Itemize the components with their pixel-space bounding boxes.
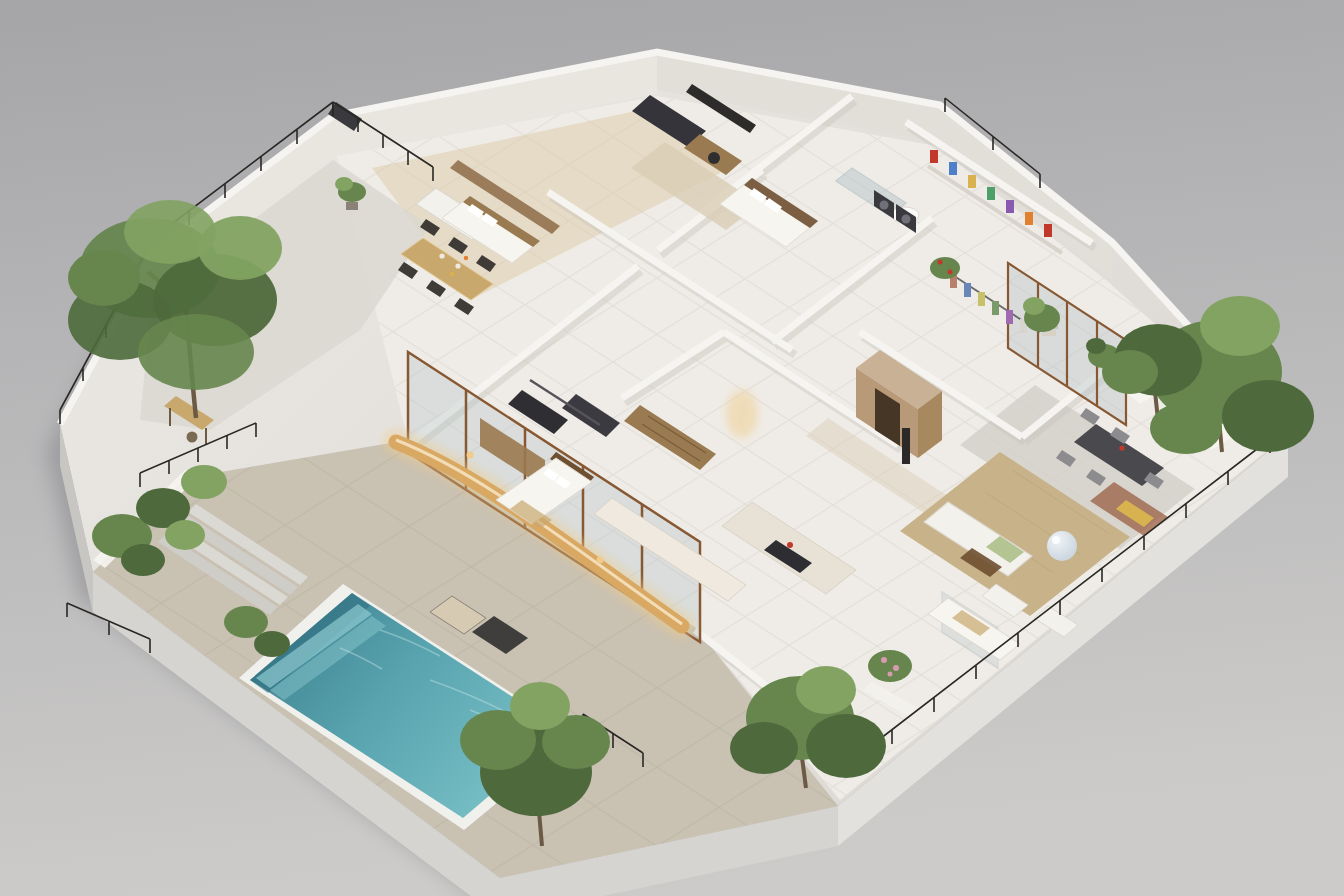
lit-doorway-glow [726, 390, 758, 438]
flower-shelf [930, 257, 960, 279]
red-pot [787, 542, 793, 548]
pink-flowers [881, 657, 887, 663]
desk-chair [187, 432, 198, 443]
render-stage [0, 0, 1344, 896]
desk-chair [708, 152, 720, 164]
floorplan-render [0, 0, 1344, 896]
stove-pipe [902, 428, 910, 464]
balloon-sculpture [1047, 531, 1077, 561]
